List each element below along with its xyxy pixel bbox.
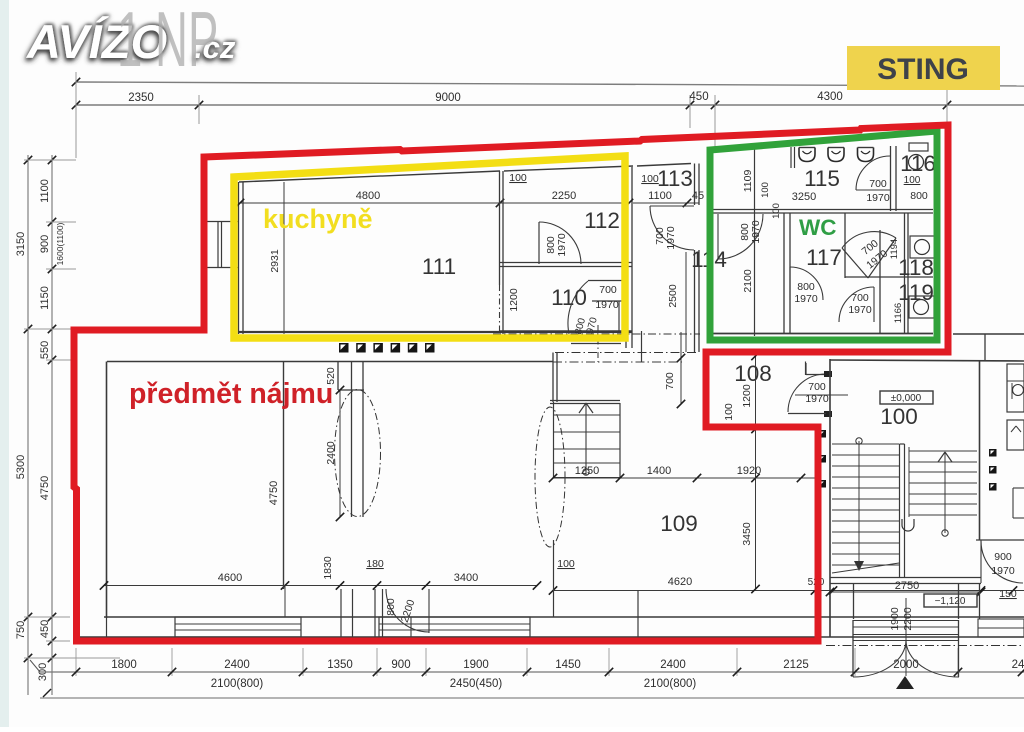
svg-text:550: 550 (39, 341, 51, 359)
svg-text:3400: 3400 (454, 572, 478, 584)
svg-text:3150: 3150 (15, 232, 27, 256)
svg-text:113: 113 (657, 166, 693, 191)
svg-text:2200: 2200 (902, 607, 914, 631)
svg-text:100: 100 (509, 172, 527, 184)
svg-text:4750: 4750 (39, 476, 51, 500)
svg-text:1900: 1900 (463, 659, 489, 671)
svg-text:2400: 2400 (325, 441, 337, 465)
svg-text:2350: 2350 (128, 92, 154, 104)
svg-text:2100: 2100 (742, 269, 754, 293)
svg-text:1200: 1200 (508, 288, 520, 312)
svg-text:1970: 1970 (556, 233, 568, 257)
svg-text:117: 117 (806, 245, 842, 270)
svg-text:1970: 1970 (665, 226, 677, 250)
svg-text:450: 450 (39, 620, 51, 638)
svg-text:1400: 1400 (647, 465, 671, 477)
svg-text:1920: 1920 (737, 465, 761, 477)
svg-text:111: 111 (422, 254, 456, 279)
svg-text:WC: WC (799, 215, 837, 240)
svg-text:700: 700 (851, 292, 869, 304)
svg-text:1970: 1970 (595, 299, 619, 311)
svg-text:100: 100 (723, 403, 735, 421)
svg-text:2500: 2500 (667, 284, 679, 308)
svg-text:4300: 4300 (817, 91, 843, 103)
svg-text:100: 100 (760, 182, 771, 198)
svg-text:45: 45 (692, 190, 704, 202)
svg-text:110: 110 (551, 285, 587, 310)
svg-text:900: 900 (39, 235, 51, 253)
svg-text:STING: STING (877, 53, 969, 86)
svg-text:700: 700 (869, 178, 887, 190)
svg-text:700: 700 (808, 381, 826, 393)
svg-text:1800: 1800 (111, 659, 137, 671)
svg-text:1109: 1109 (742, 170, 754, 193)
svg-text:800: 800 (385, 598, 397, 616)
svg-text:1970: 1970 (866, 192, 890, 204)
svg-text:100: 100 (904, 175, 921, 186)
svg-text:1200: 1200 (741, 384, 753, 408)
svg-text:kuchyně: kuchyně (263, 204, 373, 234)
svg-text:100: 100 (880, 404, 918, 429)
svg-text:115: 115 (804, 166, 840, 191)
svg-text:1350: 1350 (327, 659, 353, 671)
svg-text:750: 750 (15, 621, 27, 639)
svg-text:800: 800 (797, 281, 815, 293)
svg-text:900: 900 (391, 659, 410, 671)
svg-text:2400: 2400 (224, 659, 250, 671)
svg-text:112: 112 (584, 208, 620, 233)
svg-text:1100: 1100 (648, 190, 672, 202)
svg-text:2250: 2250 (552, 190, 576, 202)
svg-text:150: 150 (999, 588, 1017, 600)
svg-text:800: 800 (910, 190, 928, 202)
svg-text:−1,120: −1,120 (935, 596, 966, 607)
svg-text:109: 109 (660, 511, 698, 536)
svg-text:1600(1100): 1600(1100) (55, 222, 65, 265)
svg-text:1100: 1100 (39, 179, 51, 203)
svg-text:3450: 3450 (741, 522, 753, 546)
svg-text:700: 700 (599, 284, 617, 296)
svg-text:2100(800): 2100(800) (211, 678, 264, 690)
svg-text:±0,000: ±0,000 (891, 393, 922, 404)
svg-text:1970: 1970 (805, 393, 829, 405)
svg-text:4600: 4600 (218, 572, 242, 584)
svg-text:100: 100 (641, 173, 659, 185)
svg-text:2100(800): 2100(800) (644, 678, 697, 690)
svg-text:5300: 5300 (15, 455, 27, 479)
svg-text:1450: 1450 (555, 659, 581, 671)
svg-text:1166: 1166 (893, 303, 904, 323)
svg-text:3250: 3250 (792, 191, 816, 203)
svg-text:180: 180 (366, 558, 384, 570)
svg-text:2450(450): 2450(450) (450, 678, 503, 690)
svg-text:1970: 1970 (794, 293, 818, 305)
svg-text:1830: 1830 (322, 556, 334, 580)
svg-text:2400: 2400 (660, 659, 686, 671)
svg-text:118: 118 (898, 255, 934, 280)
svg-text:předmět nájmu: předmět nájmu (129, 378, 333, 410)
svg-text:100: 100 (557, 558, 575, 570)
svg-text:1970: 1970 (848, 304, 872, 316)
svg-text:700: 700 (664, 372, 676, 390)
svg-text:4620: 4620 (668, 576, 692, 588)
svg-text:2931: 2931 (269, 249, 281, 273)
svg-text:4800: 4800 (356, 190, 380, 202)
svg-text:4750: 4750 (268, 481, 280, 505)
svg-text:108: 108 (734, 361, 772, 386)
svg-text:1970: 1970 (750, 220, 762, 244)
svg-text:1970: 1970 (991, 565, 1015, 577)
svg-text:9000: 9000 (435, 92, 461, 104)
svg-text:450: 450 (689, 91, 708, 103)
svg-text:1150: 1150 (39, 286, 51, 310)
svg-text:2750: 2750 (895, 580, 919, 592)
svg-text:24: 24 (1012, 659, 1024, 671)
svg-text:1900: 1900 (889, 607, 901, 631)
svg-text:1250: 1250 (575, 465, 599, 477)
svg-text:1 NP: 1 NP (117, 0, 218, 83)
svg-text:2125: 2125 (783, 659, 809, 671)
svg-text:900: 900 (994, 551, 1012, 563)
svg-text:100: 100 (771, 203, 782, 219)
